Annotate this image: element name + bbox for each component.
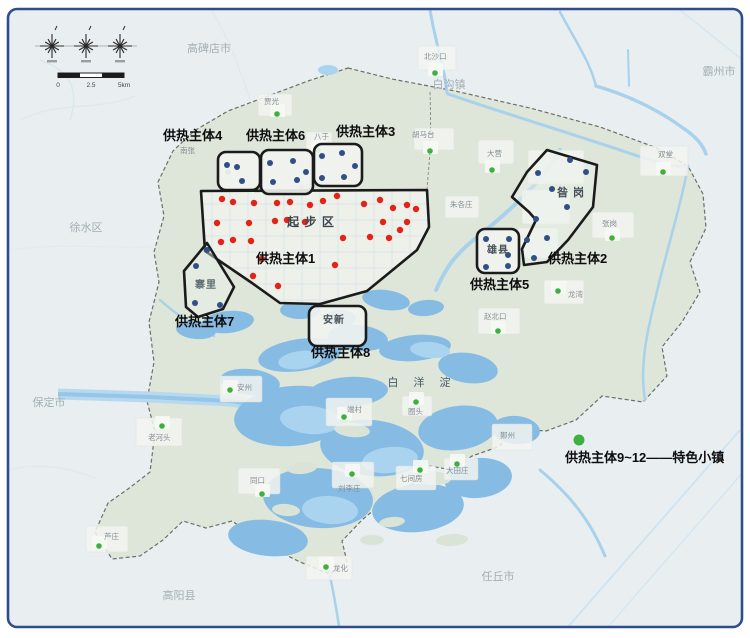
town-label: 北沙口 — [424, 52, 447, 61]
heat-source-dot — [564, 204, 570, 210]
zone-label: 供热主体3 — [335, 124, 395, 139]
heating-zone-5: 供热主体5 — [469, 229, 529, 292]
town-label: 芦庄 — [104, 531, 119, 541]
scale-tick-label: 0 — [56, 82, 60, 89]
town-green-dot — [609, 235, 615, 241]
town-green-dot — [274, 111, 280, 117]
heat-source-dot — [230, 199, 236, 205]
heat-source-dot — [334, 193, 340, 199]
town-label: 龙湾 — [568, 289, 583, 299]
heat-source-dot — [270, 179, 276, 185]
heat-source-dot — [544, 235, 550, 241]
town-green-dot — [323, 564, 329, 570]
zone-label: 供热主体8 — [310, 345, 370, 360]
town-label: 圈头 — [408, 406, 423, 416]
heat-source-dot — [367, 234, 373, 240]
scale-tick-label: 2.5 — [86, 82, 95, 89]
place-label: 安新 — [323, 313, 345, 326]
town-label: 胡马台 — [412, 129, 435, 139]
legend-green-dot — [574, 435, 585, 446]
heat-source-dot — [219, 196, 225, 202]
heat-source-dot — [583, 169, 589, 175]
heat-source-dot — [341, 174, 347, 180]
heat-source-dot — [204, 247, 210, 253]
city-label: 霸州市 — [703, 64, 736, 78]
place-label: 雄县 — [486, 243, 509, 256]
town: 鄚州 — [500, 430, 515, 440]
town-green-dot — [259, 491, 265, 497]
city-label: 徐水区 — [70, 220, 103, 234]
town-green-dot — [489, 167, 495, 173]
heat-source-dot — [275, 283, 281, 289]
place-label: 寨里 — [194, 278, 217, 291]
heat-source-dot — [386, 235, 392, 241]
city-label: 高阳县 — [163, 588, 196, 602]
town: 圈头 — [408, 392, 424, 416]
map-frame: 北沙口贾光南张八于胡马台三台大王大营双堂朱各庄张岗龙湾赵北口圈头鄚州大田庄七间房… — [0, 0, 750, 638]
heat-source-dot — [524, 237, 530, 243]
heat-source-dot — [413, 206, 419, 212]
heat-source-dot — [267, 160, 273, 166]
town-label: 端村 — [347, 404, 362, 414]
town-label: 同口 — [250, 476, 265, 485]
heat-source-dot — [380, 219, 386, 225]
city-label: 保定市 — [33, 395, 66, 409]
heat-source-dot — [352, 163, 358, 169]
heat-source-dot — [506, 236, 512, 242]
town-label: 老河头 — [148, 432, 171, 442]
town-green-dot — [432, 70, 438, 76]
heat-source-dot — [192, 300, 198, 306]
rose-caption-mark — [115, 60, 125, 62]
scale-tick-label: 5km — [118, 82, 130, 89]
town-label: 大田庄 — [446, 465, 469, 475]
town: 朱各庄 — [450, 199, 473, 209]
heat-source-dot — [319, 175, 325, 181]
scale-bar-segment — [102, 73, 124, 78]
heat-source-dot — [251, 200, 257, 206]
heat-source-dot — [193, 263, 199, 269]
scale-bar-segment — [58, 73, 80, 78]
heat-source-dot — [287, 199, 293, 205]
zone-8-outline — [309, 306, 366, 346]
river — [628, 50, 629, 86]
pond — [318, 65, 338, 75]
heat-source-dot — [230, 237, 236, 243]
heat-source-dot — [234, 164, 240, 170]
town-label: 南张 — [180, 145, 195, 155]
city-label: 任丘市 — [482, 569, 515, 583]
town-green-dot — [427, 148, 433, 154]
town-green-dot — [341, 414, 347, 420]
town-green-dot — [660, 169, 666, 175]
heat-source-dot — [319, 153, 325, 159]
heat-source-dot — [218, 239, 224, 245]
heat-source-dot — [294, 177, 300, 183]
heat-source-dot — [307, 202, 313, 208]
legend-label: 供热主体9~12——特色小镇 — [564, 450, 724, 465]
city-label: 白沟镇 — [433, 77, 466, 91]
heat-source-dot — [272, 218, 278, 224]
heat-source-dot — [224, 162, 230, 168]
heat-source-dot — [397, 227, 403, 233]
heat-source-dot — [377, 197, 383, 203]
heat-source-dot — [549, 186, 555, 192]
town-label: 龙化 — [333, 563, 348, 573]
heat-source-dot — [531, 255, 537, 261]
place-label: 昝 岗 — [556, 185, 585, 199]
town-label: 双堂 — [658, 149, 673, 159]
zone-4-outline — [218, 152, 260, 190]
rose-caption-mark — [47, 60, 57, 62]
heat-source-dot — [390, 205, 396, 211]
heat-source-dot — [567, 157, 573, 163]
town-green-dot — [96, 543, 102, 549]
heat-source-dot — [248, 238, 254, 244]
town-label: 朱各庄 — [450, 199, 473, 209]
town-label: 大营 — [487, 148, 502, 158]
town-green-dot — [227, 387, 233, 393]
heat-source-dot — [214, 220, 220, 226]
heat-source-dot — [332, 262, 338, 268]
town-label: 贾光 — [264, 96, 279, 106]
town-green-dot — [159, 423, 165, 429]
lake-island — [360, 535, 384, 545]
heat-source-dot — [239, 178, 245, 184]
town-label: 七间房 — [400, 473, 423, 483]
lake-label: 白 洋 淀 — [387, 375, 456, 389]
zone-label: 供热主体6 — [245, 128, 305, 143]
town-green-dot — [555, 288, 561, 294]
heat-source-dot — [290, 158, 296, 164]
heat-source-dot — [535, 170, 541, 176]
heat-source-dot — [217, 302, 223, 308]
city-label: 高碑店市 — [187, 41, 231, 55]
rose-caption-mark — [81, 60, 91, 62]
heat-source-dot — [404, 219, 410, 225]
zone-label: 供热主体4 — [162, 128, 223, 143]
town-label: 八于 — [314, 132, 329, 141]
town-label: 鄚州 — [500, 430, 515, 440]
map-content: 北沙口贾光南张八于胡马台三台大王大营双堂朱各庄张岗龙湾赵北口圈头鄚州大田庄七间房… — [8, 8, 745, 636]
place-label: 起 步 区 — [286, 214, 335, 229]
heat-source-dot — [320, 198, 326, 204]
zone-label: 供热主体1 — [255, 251, 315, 266]
town-green-dot — [495, 328, 501, 334]
town-green-dot — [413, 399, 419, 405]
town-green-dot — [417, 467, 423, 473]
heat-source-dot — [303, 169, 309, 175]
town-green-dot — [349, 471, 355, 477]
zone-label: 供热主体5 — [469, 277, 529, 292]
town-label: 刘李庄 — [338, 483, 361, 493]
town-label: 赵北口 — [484, 311, 507, 321]
town-label: 张岗 — [602, 219, 617, 228]
heat-source-dot — [250, 273, 256, 279]
town-label: 安州 — [237, 382, 252, 392]
heat-source-dot — [483, 236, 489, 242]
heat-source-dot — [404, 202, 410, 208]
heat-source-dot — [246, 220, 252, 226]
zone-label: 供热主体7 — [174, 314, 234, 329]
heat-source-dot — [533, 216, 539, 222]
planning-map: 北沙口贾光南张八于胡马台三台大王大营双堂朱各庄张岗龙湾赵北口圈头鄚州大田庄七间房… — [0, 0, 750, 638]
heat-source-dot — [339, 150, 345, 156]
heat-source-dot — [274, 200, 280, 206]
zone-label: 供热主体2 — [547, 251, 607, 266]
heat-source-dot — [361, 201, 367, 207]
heat-source-dot — [483, 264, 489, 270]
heat-source-dot — [340, 235, 346, 241]
heat-source-dot — [505, 263, 511, 269]
